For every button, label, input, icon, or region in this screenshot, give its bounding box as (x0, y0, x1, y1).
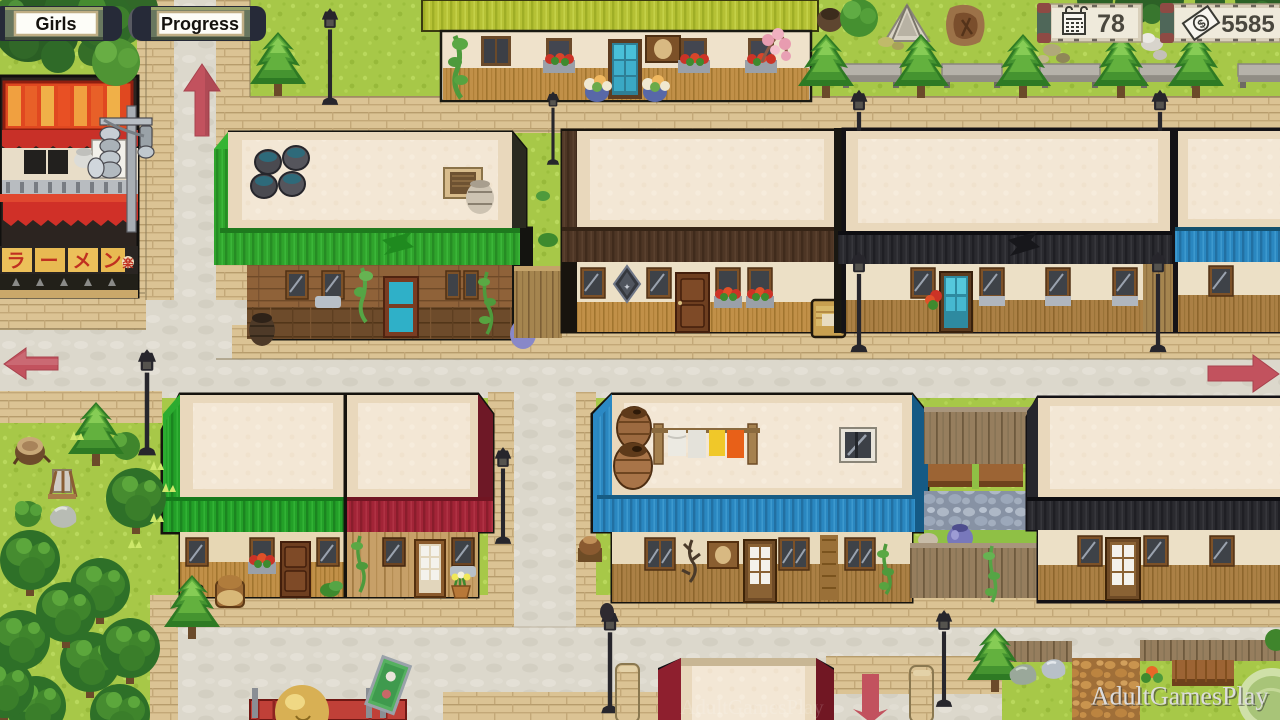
svg-text:ラ: ラ (6, 251, 25, 272)
svg-text:Girls: Girls (35, 14, 76, 34)
svg-text:ー: ー (39, 251, 58, 272)
svg-text:メ: メ (72, 251, 91, 272)
svg-text:AdultGamesPlay: AdultGamesPlay (1091, 682, 1269, 711)
svg-text:Progress: Progress (161, 14, 239, 34)
svg-text:楽: 楽 (122, 256, 135, 270)
svg-text:5585: 5585 (1221, 11, 1274, 38)
svg-text:78: 78 (1097, 10, 1125, 38)
svg-text:✦: ✦ (623, 282, 631, 292)
svg-text:ン: ン (102, 251, 121, 272)
svg-text:AdultGamesPlay: AdultGamesPlay (680, 695, 824, 719)
